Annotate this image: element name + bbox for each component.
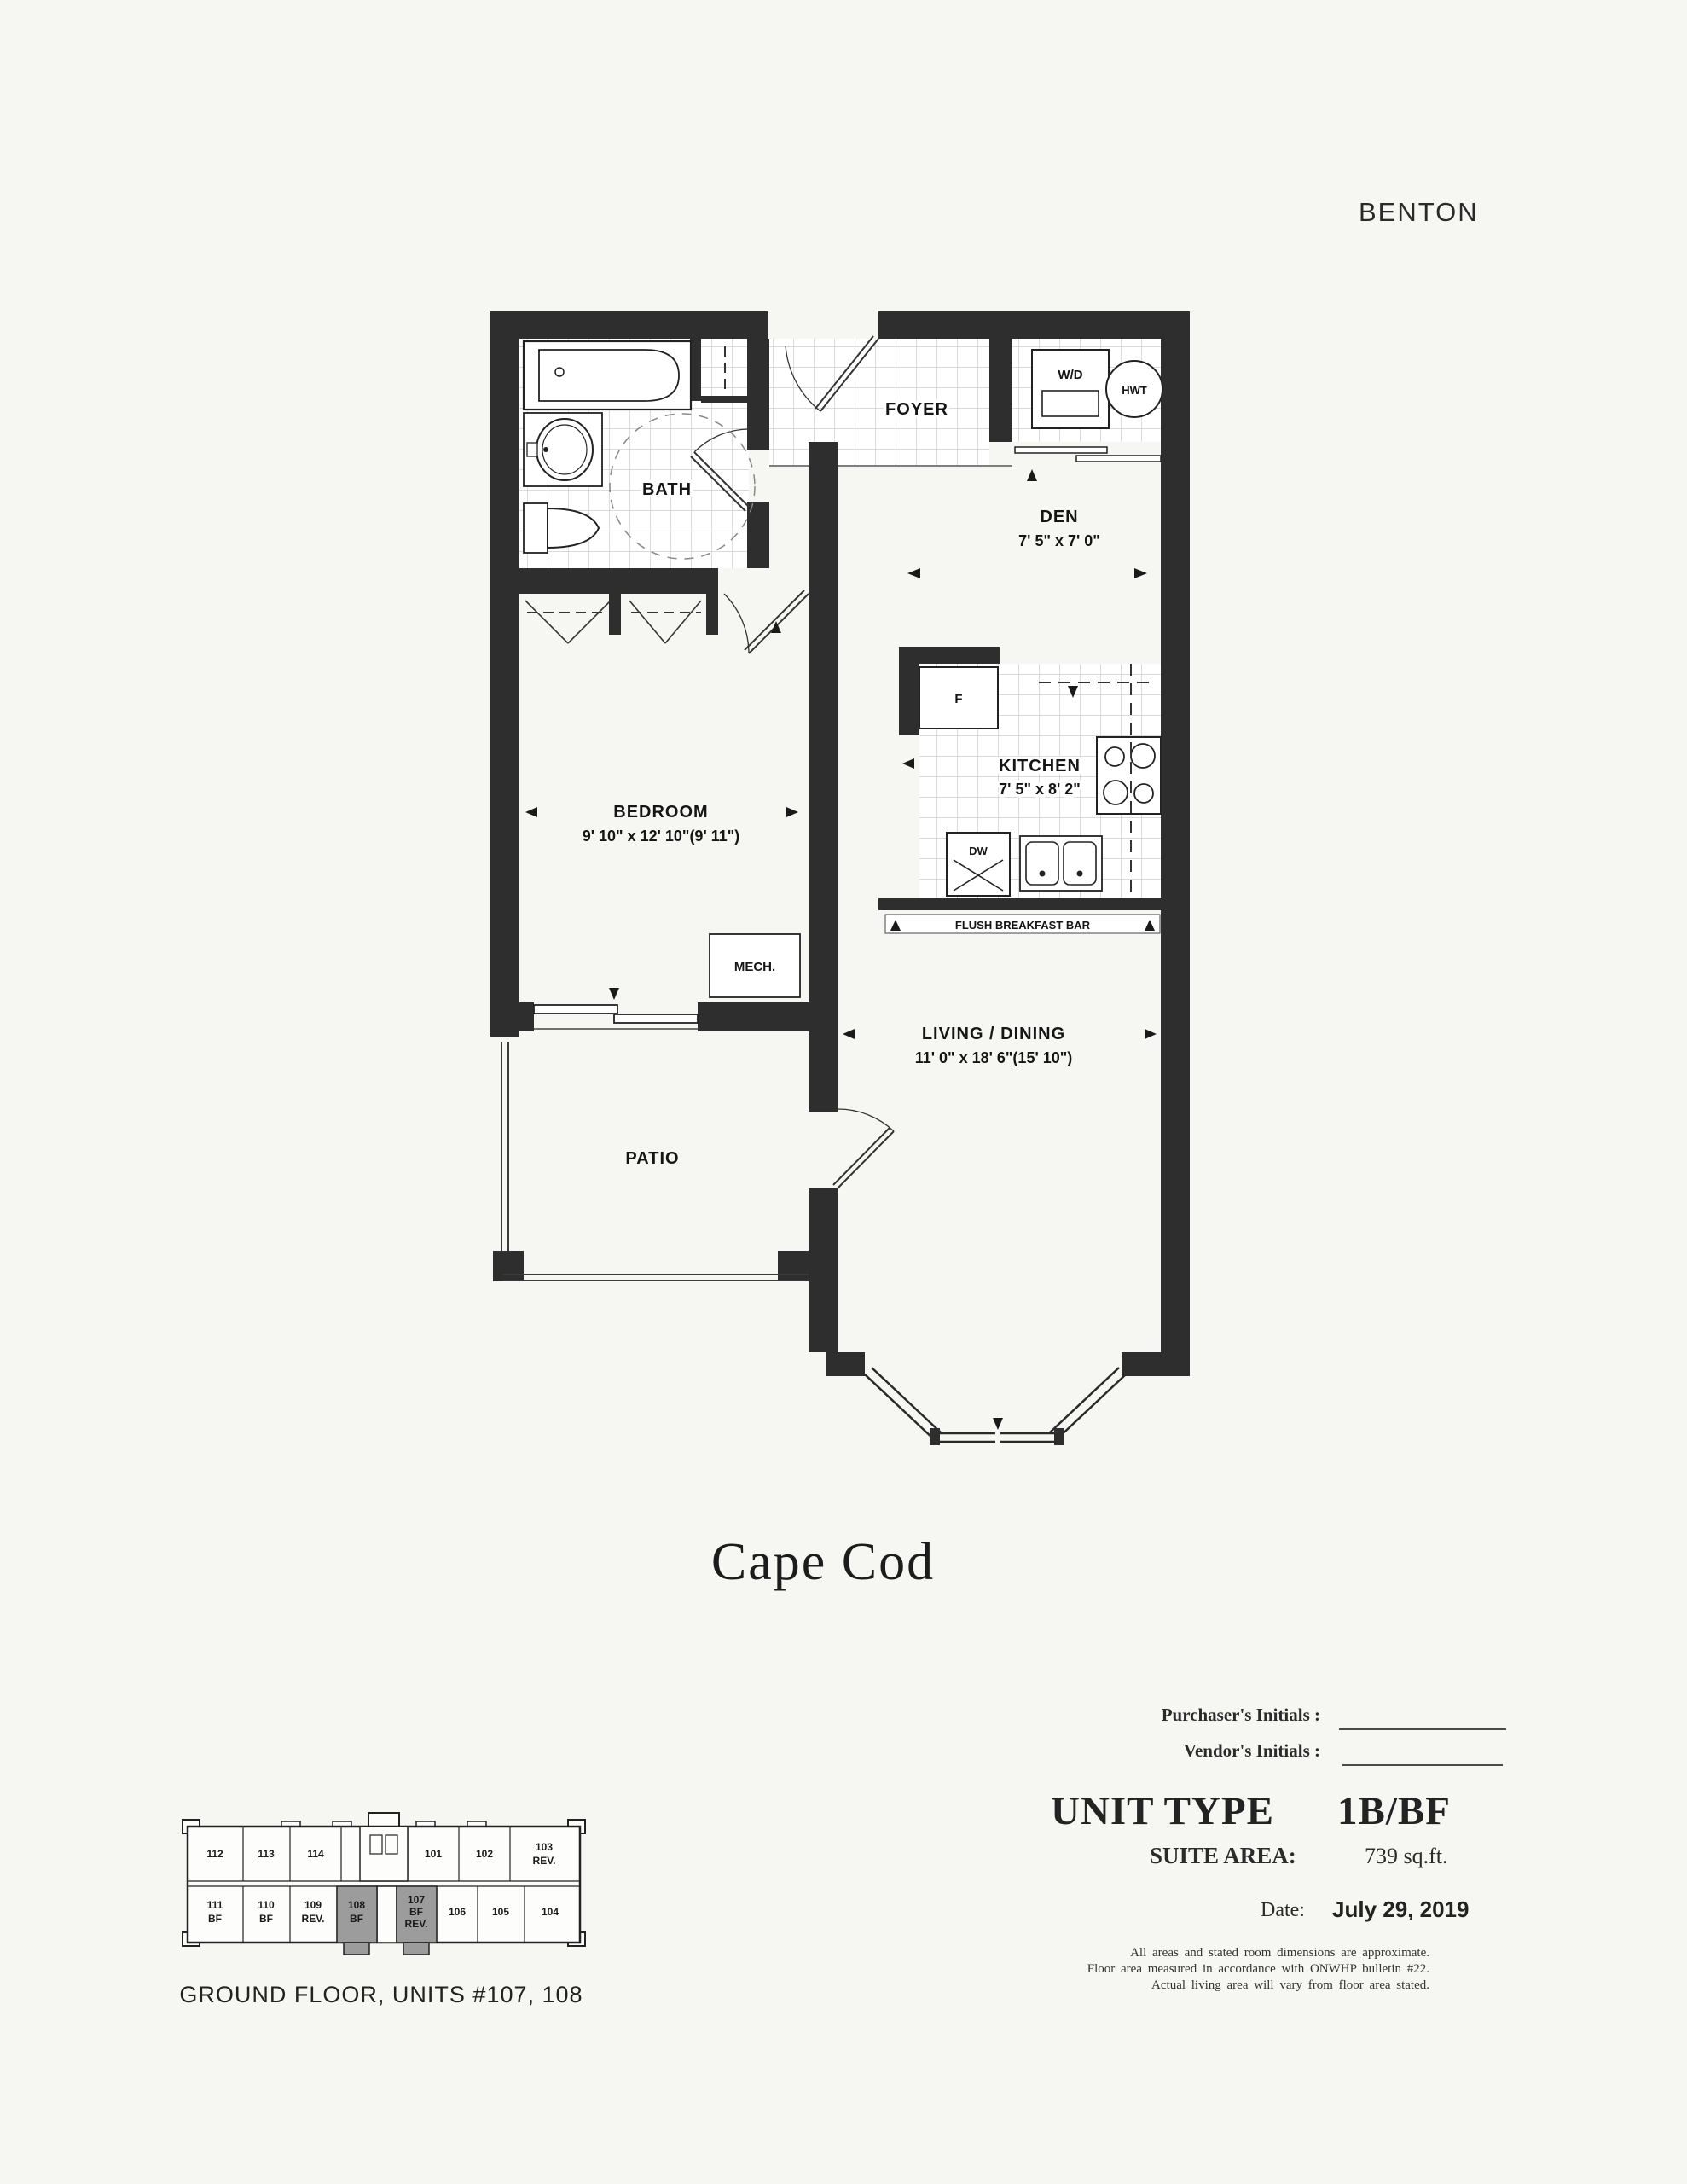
bedroom-door (724, 590, 809, 653)
kitchen-sink (1020, 836, 1102, 891)
disclaimer-line-2: Floor area measured in accordance with O… (1071, 1961, 1429, 1978)
unit-102: 102 (476, 1848, 493, 1860)
wd-label: W/D (1058, 368, 1082, 382)
unit-110-bf: BF (259, 1913, 273, 1925)
cooktop (1097, 737, 1161, 814)
unit-108: 108 (348, 1899, 365, 1911)
date-value: July 29, 2019 (1332, 1896, 1469, 1923)
bay-window (865, 1368, 1126, 1445)
bedroom-dims: 9' 10" x 12' 10"(9' 11") (583, 828, 740, 845)
kitchen-dims: 7' 5" x 8' 2" (999, 781, 1081, 798)
key-plan-building (183, 1813, 585, 1955)
key-plan-caption: GROUND FLOOR, UNITS #107, 108 (179, 1982, 583, 2007)
suite-area-label: SUITE AREA: (1150, 1843, 1296, 1869)
unit-107: 107 (408, 1894, 425, 1906)
foyer-label: FOYER (885, 400, 948, 419)
patio-label: PATIO (625, 1149, 679, 1168)
unit-107-rev: REV. (405, 1918, 428, 1930)
unit-103-rev: REV. (533, 1855, 556, 1867)
date-label: Date: (1261, 1899, 1305, 1922)
bedroom-label: BEDROOM (613, 803, 708, 822)
bath-sink (524, 413, 602, 486)
dw-label: DW (969, 845, 988, 857)
unit-113: 113 (258, 1848, 275, 1860)
unit-109-rev: REV. (302, 1913, 325, 1925)
hwt-label: HWT (1122, 384, 1147, 397)
unit-114: 114 (307, 1848, 324, 1860)
dishwasher (947, 833, 1010, 896)
vendor-initials-line[interactable] (1342, 1764, 1503, 1766)
suite-area-value: 739 sq.ft. (1365, 1844, 1448, 1869)
vendor-initials-label: Vendor's Initials : (981, 1740, 1320, 1762)
unit-104: 104 (542, 1906, 559, 1918)
den-label: DEN (1040, 508, 1078, 526)
washer-dryer (1032, 350, 1109, 428)
purchaser-initials-label: Purchaser's Initials : (981, 1705, 1320, 1726)
unit-105: 105 (492, 1906, 509, 1918)
unit-101: 101 (425, 1848, 442, 1860)
key-plan: 112 113 114 101 102 103 REV. 111 BF 110 … (162, 1796, 606, 2013)
unit-111: 111 (207, 1899, 223, 1911)
den-dims: 7' 5" x 7' 0" (1018, 532, 1100, 549)
unit-108-bf: BF (350, 1913, 363, 1925)
bathtub (524, 341, 691, 409)
disclaimer-line-1: All areas and stated room dimensions are… (1071, 1945, 1429, 1961)
unit-110: 110 (258, 1899, 275, 1911)
unit-112: 112 (206, 1848, 223, 1860)
living-dims: 11' 0" x 18' 6"(15' 10") (915, 1049, 1073, 1066)
fridge-label: F (954, 692, 962, 706)
sliding-door (534, 1005, 698, 1029)
unit-111-bf: BF (208, 1913, 222, 1925)
plan-name: Cape Cod (567, 1532, 1079, 1593)
scanned-floor-plan-page: { "header": { "project_name": "BENTON" }… (0, 0, 1687, 2184)
disclaimer-line-3: Actual living area will vary from floor … (1071, 1978, 1429, 1994)
laundry-closet-track (1015, 447, 1161, 462)
floor-plan-drawing: BATH FOYER W/D HWT DEN 7' 5" x 7' 0" F K… (486, 305, 1194, 1453)
project-name: BENTON (1359, 197, 1479, 228)
unit-103: 103 (536, 1841, 553, 1853)
unit-107-bf: BF (409, 1906, 423, 1918)
bath-label: BATH (642, 480, 692, 499)
unit-106: 106 (449, 1906, 466, 1918)
disclaimer-text: All areas and stated room dimensions are… (1071, 1945, 1429, 1994)
unit-type-value: 1B/BF (1337, 1788, 1451, 1834)
kitchen-label: KITCHEN (999, 757, 1081, 775)
breakfast-bar-label: FLUSH BREAKFAST BAR (955, 919, 1091, 932)
mech-label: MECH. (734, 960, 775, 974)
patio-swing-door (833, 1109, 894, 1188)
unit-type-label: UNIT TYPE (1051, 1788, 1274, 1834)
purchaser-initials-line[interactable] (1339, 1728, 1506, 1730)
living-label: LIVING / DINING (922, 1025, 1065, 1043)
unit-109: 109 (304, 1899, 322, 1911)
